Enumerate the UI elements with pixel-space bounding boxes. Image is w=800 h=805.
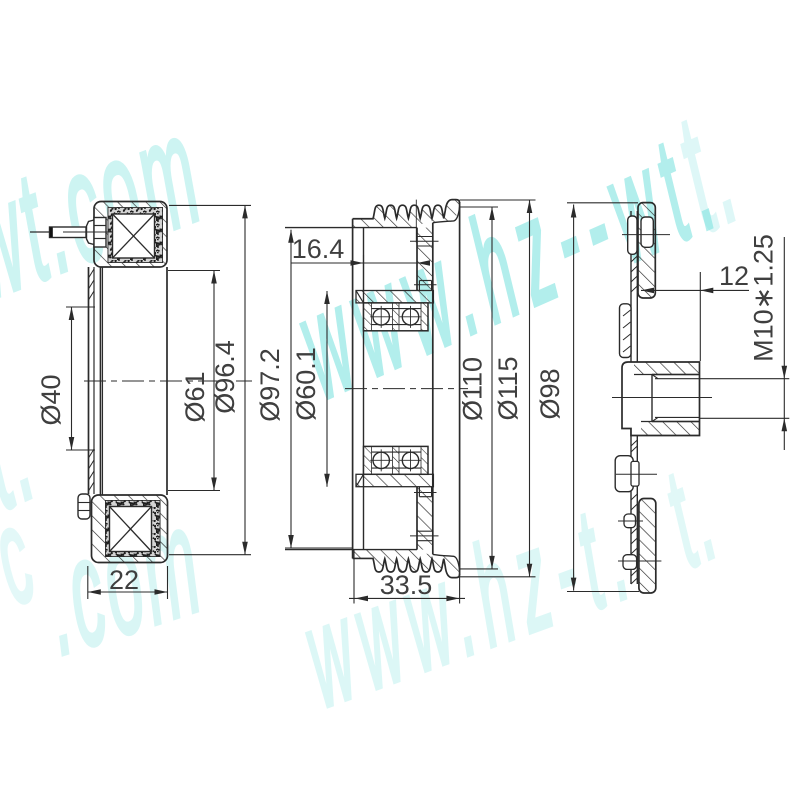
- svg-text:Ø96.4: Ø96.4: [210, 340, 240, 414]
- svg-text:Ø115: Ø115: [493, 356, 523, 420]
- svg-text:Ø60.1: Ø60.1: [291, 347, 321, 421]
- svg-text:M10∗1.25: M10∗1.25: [749, 234, 779, 362]
- svg-text:Ø40: Ø40: [36, 374, 66, 425]
- svg-text:12: 12: [719, 261, 749, 291]
- svg-text:33.5: 33.5: [380, 570, 433, 600]
- svg-text:Ø98: Ø98: [535, 368, 565, 419]
- svg-text:16.4: 16.4: [292, 234, 345, 264]
- svg-text:22: 22: [109, 565, 139, 595]
- svg-text:Ø61: Ø61: [180, 371, 210, 422]
- svg-text:Ø97.2: Ø97.2: [255, 348, 285, 422]
- svg-text:Ø110: Ø110: [458, 357, 488, 421]
